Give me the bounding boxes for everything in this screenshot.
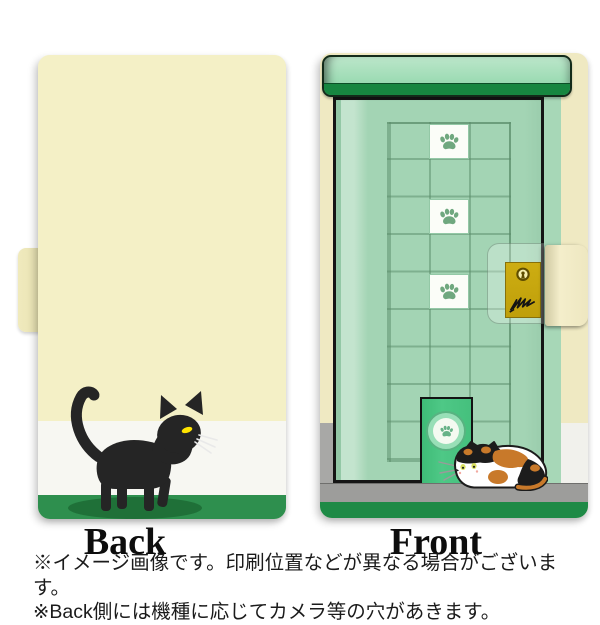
back-cover-cream-area <box>38 55 286 421</box>
black-cat-illustration <box>66 385 218 519</box>
magnetic-strap-outer-tab <box>545 245 588 326</box>
calico-head-orange-spot <box>481 447 491 454</box>
paw-print-icon <box>437 281 461 303</box>
black-cat-tail <box>76 392 99 457</box>
door-lintel-green-band <box>324 83 570 95</box>
black-cat-ear-right <box>185 391 203 415</box>
paw-print-icon <box>438 424 455 439</box>
calico-cat-illustration <box>438 439 548 491</box>
front-spine-white-section <box>561 423 588 483</box>
back-case <box>38 55 286 519</box>
paw-tile <box>429 274 469 309</box>
paw-tile <box>429 124 469 159</box>
front-left-edge-gray <box>320 423 334 483</box>
keyhole-icon <box>514 267 532 288</box>
scratch-marks-icon <box>508 291 539 314</box>
note-line-1: ※イメージ画像です。印刷位置などが異なる場合がございます。 <box>33 551 593 600</box>
calico-rear-orange-spot <box>530 464 540 471</box>
paw-print-icon <box>437 206 461 228</box>
front-bottom-green-edge <box>320 502 588 518</box>
paw-tile <box>429 199 469 234</box>
disclaimer-notes: ※イメージ画像です。印刷位置などが異なる場合がございます。 ※Back側には機種… <box>33 551 593 625</box>
door-lintel-bar <box>322 55 572 97</box>
front-case <box>320 53 588 518</box>
black-cat-ear-left <box>160 395 177 419</box>
calico-head-orange-spot <box>464 449 473 455</box>
note-line-2: ※Back側には機種に応じてカメラ等の穴があきます。 <box>33 600 593 625</box>
paw-print-icon <box>437 131 461 153</box>
lock-plate <box>505 262 541 318</box>
calico-belly-orange-patch <box>488 470 508 484</box>
